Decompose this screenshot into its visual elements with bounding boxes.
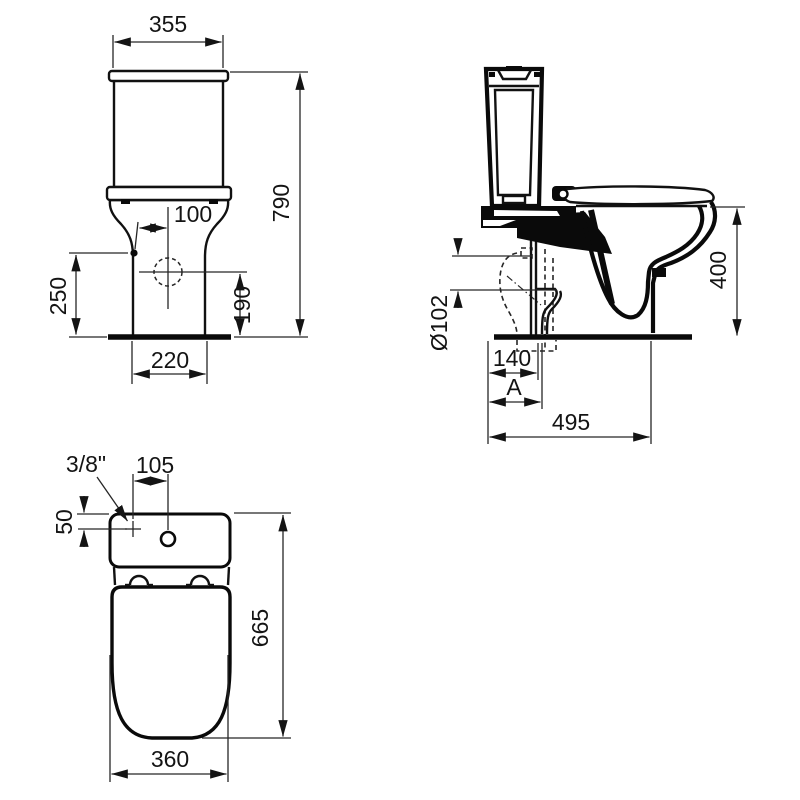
technical-drawing-page: 355 790 100 250 190 220 [0, 0, 800, 800]
dim-label-rough-in: A [506, 374, 522, 400]
front-seat-hinge-left [121, 199, 130, 204]
front-cistern-lid [109, 71, 228, 81]
plan-seat-outline [112, 587, 230, 738]
dim-label-outlet-setout: 140 [493, 345, 531, 371]
front-view: 355 790 100 250 190 220 [45, 11, 308, 384]
plan-cistern-band-left [114, 567, 115, 585]
front-cistern-body [114, 80, 223, 187]
side-bowl-foot-step [652, 268, 666, 277]
plan-flush-button [161, 532, 175, 546]
side-view: 400 Ø102 140 A 495 [426, 66, 745, 444]
dim-label-tank-width: 355 [149, 11, 187, 37]
plan-cistern-band-right [228, 567, 229, 585]
dim-label-seat-width: 360 [151, 746, 189, 772]
side-lid-corner [534, 72, 540, 77]
dim-label-inlet-height-side: 250 [45, 277, 71, 315]
dim-label-button-offset: 105 [136, 452, 174, 478]
dim-label-overall-depth: 665 [247, 609, 273, 647]
dim-label-depth: 495 [552, 409, 590, 435]
side-lid-corner [489, 72, 495, 77]
dim-label-seat-height: 400 [705, 251, 731, 289]
plan-hinge-left [130, 576, 148, 585]
dim-label-outlet-diameter: Ø102 [426, 295, 452, 351]
dim-label-inlet-height-front: 190 [229, 286, 255, 324]
side-platform-seam [494, 210, 560, 216]
side-trap-dashed-outline [500, 253, 517, 335]
dim-label-inlet-setback: 50 [51, 509, 77, 535]
plan-view: 3/8" 105 50 665 360 [51, 451, 291, 782]
dim-label-inlet-offset: 100 [174, 201, 212, 227]
dim-label-overall-height: 790 [268, 184, 294, 222]
side-outlet-pipe [547, 291, 561, 334]
plan-hinge-right [191, 576, 209, 585]
front-cistern-base-flange [107, 187, 231, 200]
side-hinge-pin [559, 190, 568, 199]
toilet-dimension-drawing: 355 790 100 250 190 220 [0, 0, 800, 800]
side-seat-profile [564, 186, 714, 204]
dim-label-inlet-thread: 3/8" [66, 451, 106, 477]
front-fixing-dot [130, 249, 137, 256]
dim-label-base-width: 220 [151, 347, 189, 373]
side-lid-tab [506, 66, 522, 71]
